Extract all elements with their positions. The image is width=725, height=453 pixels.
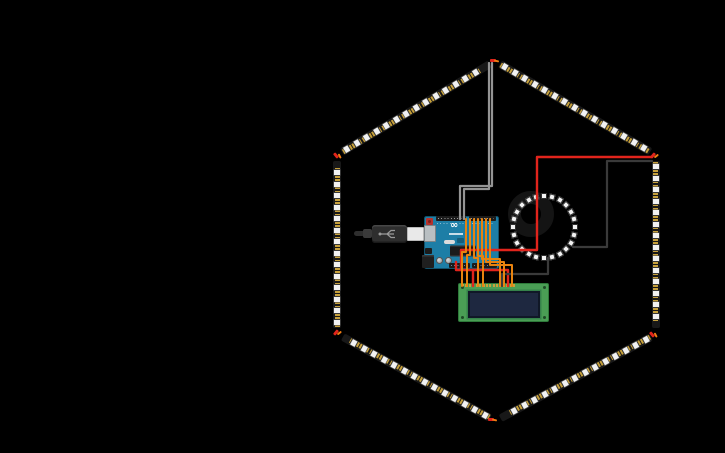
led-chip — [653, 199, 660, 204]
led-chip — [653, 210, 660, 215]
led-solder-pad — [335, 317, 340, 319]
neopixel-strip-side-1[interactable] — [340, 61, 492, 156]
lcd-pin — [493, 284, 495, 287]
ring-led — [570, 231, 577, 238]
strip-data-wire-b[interactable] — [464, 63, 489, 219]
led-unit — [333, 179, 341, 191]
lcd-pin — [476, 284, 478, 287]
led-solder-pad — [335, 225, 340, 227]
led-unit — [652, 242, 660, 254]
led-unit — [507, 404, 521, 417]
neopixel-strip-side-4[interactable] — [498, 333, 652, 421]
solder-joint-orange — [492, 419, 497, 422]
solder-joint-orange — [337, 331, 342, 336]
led-chip — [653, 187, 660, 192]
led-solder-pad — [335, 179, 340, 181]
led-unit — [652, 253, 660, 265]
led-solder-pad — [335, 268, 340, 270]
led-unit — [333, 225, 341, 237]
led-unit — [333, 305, 341, 317]
mcu-chip — [450, 247, 476, 255]
lcd-pin — [510, 284, 512, 287]
led-chip — [334, 320, 341, 325]
power-jack — [422, 255, 434, 268]
led-unit — [333, 294, 341, 306]
led-chip — [334, 228, 341, 233]
arduino-logo-text — [449, 233, 463, 235]
led-chip — [334, 182, 341, 187]
lcd-pin — [496, 284, 498, 287]
neopixel-strip-side-3[interactable] — [652, 161, 660, 328]
led-solder-pad — [646, 148, 650, 153]
icsp-header — [425, 248, 432, 254]
led-chip — [334, 170, 341, 175]
ring-led — [555, 250, 563, 258]
led-unit — [652, 230, 660, 242]
ring-led — [532, 253, 539, 260]
led-solder-pad — [335, 314, 340, 316]
lcd-display[interactable] — [458, 283, 549, 322]
led-chip — [653, 302, 660, 307]
ring-led — [548, 253, 555, 260]
led-chip — [334, 308, 341, 313]
led-solder-pad — [335, 260, 340, 262]
led-chip — [653, 233, 660, 238]
lcd-screen — [468, 291, 540, 318]
led-solder-pad — [335, 188, 340, 190]
usb-cable-strain-relief — [363, 229, 372, 238]
lcd-pin — [482, 284, 484, 287]
lcd-pin — [499, 284, 501, 287]
led-unit — [333, 271, 341, 283]
led-chip — [334, 297, 341, 302]
led-solder-pad — [335, 326, 340, 328]
led-solder-pad — [335, 234, 340, 236]
led-unit — [333, 202, 341, 214]
led-solder-pad — [335, 168, 340, 170]
voltage-regulator — [457, 238, 464, 243]
led-unit — [652, 288, 660, 300]
led-unit — [333, 190, 341, 202]
ring-led — [510, 224, 516, 230]
led-chip — [653, 314, 660, 319]
ring-led — [541, 193, 547, 199]
led-unit — [652, 311, 660, 323]
led-solder-pad — [335, 202, 340, 204]
led-solder-pad — [335, 291, 340, 293]
led-solder-pad — [335, 271, 340, 273]
led-unit — [652, 207, 660, 219]
silkscreen-pin-labels — [437, 223, 494, 224]
lcd-screw-hole — [543, 286, 546, 289]
ring-led — [518, 245, 526, 253]
led-solder-pad — [654, 320, 659, 322]
pin-header-digital-right — [469, 216, 496, 221]
led-solder-pad — [335, 283, 340, 285]
pin-header-power — [449, 263, 470, 268]
led-unit — [333, 236, 341, 248]
led-unit — [333, 317, 341, 329]
neopixel-strip-side-2[interactable] — [498, 61, 653, 156]
reset-button[interactable] — [426, 218, 433, 225]
ring-led — [567, 207, 575, 215]
usb-plug-head — [407, 227, 424, 241]
led-unit — [469, 66, 483, 79]
led-unit — [652, 265, 660, 277]
ring-led — [570, 215, 577, 222]
solder-joint-orange — [654, 154, 659, 159]
led-chip — [653, 245, 660, 250]
lcd-pin — [472, 284, 474, 287]
led-unit — [652, 173, 660, 185]
led-solder-pad — [335, 257, 340, 259]
led-chip — [334, 251, 341, 256]
pin-header-analog — [472, 263, 497, 268]
lcd-pin — [489, 284, 491, 287]
led-unit — [333, 167, 341, 179]
led-chip — [653, 291, 660, 296]
led-unit — [333, 259, 341, 271]
led-chip — [334, 262, 341, 267]
lcd-pin — [479, 284, 481, 287]
led-chip — [653, 222, 660, 227]
led-unit — [333, 248, 341, 260]
led-unit — [652, 219, 660, 231]
solder-joint-orange — [494, 60, 499, 63]
lcd-pin — [503, 284, 505, 287]
led-unit — [333, 213, 341, 225]
neopixel-strip-side-5[interactable] — [340, 333, 491, 421]
led-solder-pad — [335, 248, 340, 250]
arduino-uno[interactable]: ∞ — [424, 216, 499, 269]
led-unit — [652, 299, 660, 311]
led-solder-pad — [335, 280, 340, 282]
lcd-pin — [513, 284, 515, 287]
led-unit — [652, 196, 660, 208]
led-chip — [334, 239, 341, 244]
led-solder-pad — [335, 237, 340, 239]
led-chip — [653, 164, 660, 169]
led-unit — [652, 184, 660, 196]
led-solder-pad — [335, 294, 340, 296]
circuit-canvas: ∞ — [0, 0, 725, 453]
led-unit — [333, 282, 341, 294]
ground-wire-strip-to-ring[interactable] — [573, 161, 652, 247]
led-unit — [637, 142, 651, 155]
led-solder-pad — [335, 176, 340, 178]
led-solder-pad — [335, 303, 340, 305]
lcd-pin — [469, 284, 471, 287]
ring-led — [562, 201, 570, 209]
led-chip — [334, 216, 341, 221]
led-chip — [334, 193, 341, 198]
led-solder-pad — [335, 199, 340, 201]
led-chip — [653, 176, 660, 181]
usb-port — [424, 225, 436, 242]
led-solder-pad — [335, 191, 340, 193]
led-solder-pad — [335, 245, 340, 247]
ring-led — [510, 231, 517, 238]
ring-led — [524, 250, 532, 258]
neopixel-strip-side-6[interactable] — [333, 161, 341, 328]
ring-led — [541, 255, 547, 261]
led-solder-pad — [335, 211, 340, 213]
lcd-pin — [486, 284, 488, 287]
led-chip — [653, 279, 660, 284]
usb-plug-body — [372, 225, 407, 243]
strip-data-wire-a[interactable] — [460, 63, 492, 219]
arduino-logo: ∞ — [450, 222, 458, 230]
lcd-pin — [465, 284, 467, 287]
solder-joint-orange — [337, 153, 341, 159]
led-solder-pad — [335, 214, 340, 216]
led-unit — [652, 276, 660, 288]
ring-led — [572, 224, 578, 230]
led-solder-pad — [335, 306, 340, 308]
wire-layer — [0, 0, 725, 453]
led-chip — [334, 274, 341, 279]
led-chip — [653, 268, 660, 273]
ground-wire-ring-to-lcd[interactable] — [502, 258, 548, 286]
lcd-screw-hole — [543, 316, 546, 319]
ring-led — [548, 193, 555, 200]
led-chip — [334, 285, 341, 290]
ring-led — [562, 245, 570, 253]
lcd-pin — [506, 284, 508, 287]
usb-icon — [377, 228, 402, 240]
led-unit — [652, 161, 660, 173]
ring-led — [567, 238, 575, 246]
led-chip — [334, 205, 341, 210]
led-solder-pad — [335, 222, 340, 224]
lcd-screw-hole — [461, 286, 464, 289]
solder-joint-orange — [653, 332, 657, 338]
led-chip — [653, 256, 660, 261]
lcd-screw-hole — [461, 316, 464, 319]
crystal-oscillator — [444, 240, 455, 244]
capacitor — [436, 257, 443, 264]
